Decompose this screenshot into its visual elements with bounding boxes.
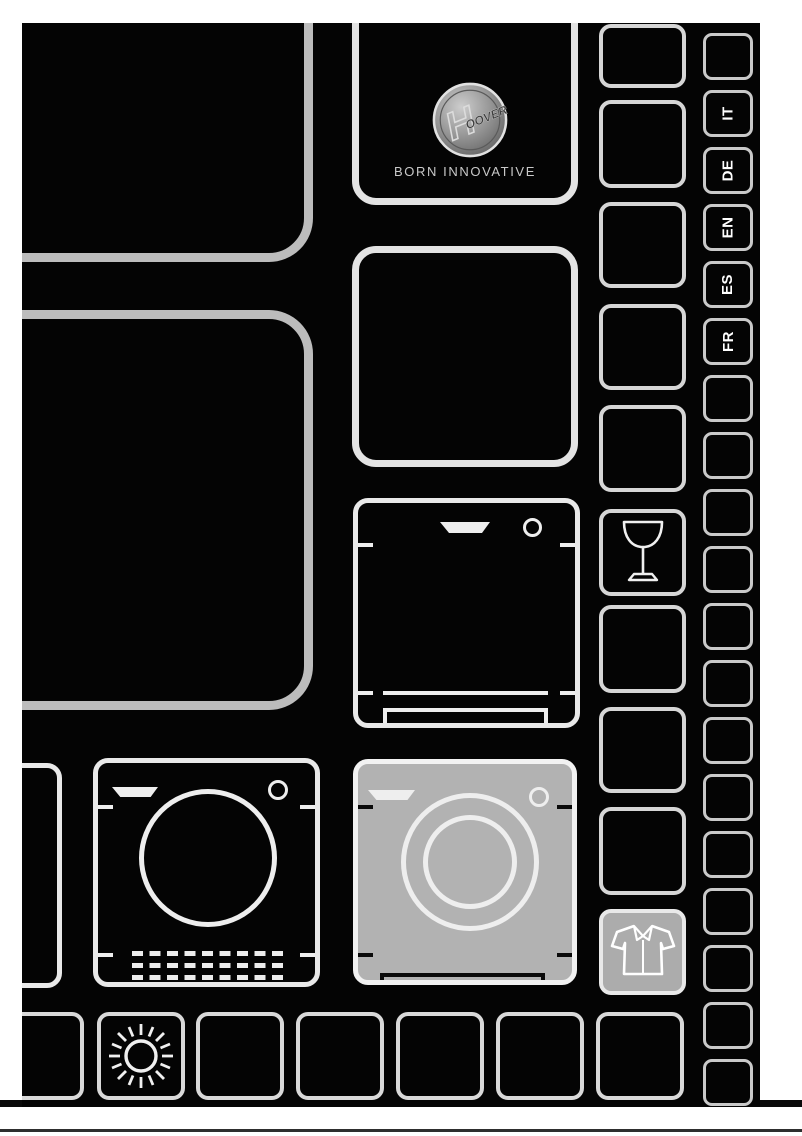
panel-top-left	[22, 23, 313, 262]
grid-cell	[599, 807, 686, 895]
grid-cell	[599, 24, 686, 88]
washer-handle	[368, 790, 415, 800]
tumble-dryer-icon	[93, 758, 320, 987]
grid-cell-small	[703, 33, 753, 80]
washer-panel-line-left	[358, 805, 373, 809]
grid-cell-small	[703, 888, 753, 935]
dishwasher-panel-line-left	[358, 543, 373, 547]
language-tab-it: IT	[703, 90, 753, 137]
dishwasher-icon	[353, 498, 580, 728]
wine-glass-cell	[599, 509, 686, 596]
grid-cell-cut-left	[22, 1012, 84, 1100]
grid-cell	[396, 1012, 484, 1100]
language-label: DE	[720, 160, 737, 182]
wine-glass-icon	[613, 518, 673, 588]
language-tab-en: EN	[703, 204, 753, 251]
grid-cell-small	[703, 489, 753, 536]
dishwasher-base-line	[383, 691, 548, 695]
panel-mid-left	[22, 310, 313, 710]
grid-cell-small	[703, 546, 753, 593]
dryer-vent-grille-row3	[132, 975, 283, 980]
shirt-cell	[599, 909, 686, 995]
grid-cell	[599, 202, 686, 288]
language-label: IT	[720, 106, 737, 120]
dryer-button	[268, 780, 288, 800]
washer-base-line-right	[557, 953, 572, 957]
washer-kickplate-left	[380, 973, 384, 980]
brand-tagline: BORN INNOVATIVE	[359, 164, 571, 179]
washer-base-line-left	[358, 953, 373, 957]
grid-cell-small	[703, 831, 753, 878]
grid-cell	[599, 605, 686, 693]
hoover-logo: H OOVER	[431, 81, 509, 159]
washer-porthole-inner	[423, 815, 517, 909]
grid-cell-small	[703, 660, 753, 707]
language-label: EN	[720, 217, 737, 239]
dishwasher-kickplate	[383, 708, 548, 712]
brand-panel: H OOVER BORN INNOVATIVE	[352, 23, 578, 205]
dryer-base-line-right	[300, 953, 315, 957]
manual-cover-page: H OOVER BORN INNOVATIVE	[0, 0, 802, 1136]
dryer-vent-grille	[132, 951, 283, 956]
grid-cell	[599, 100, 686, 188]
language-label: ES	[719, 274, 736, 295]
grid-cell-small	[703, 717, 753, 764]
panel-cut-left	[22, 763, 62, 988]
washer-kickplate-right	[541, 973, 545, 980]
panel-blank-middle	[352, 246, 578, 467]
washing-machine-icon	[353, 759, 577, 985]
grid-cell-small	[703, 1059, 753, 1106]
washer-kickplate	[380, 973, 545, 977]
grid-cell	[599, 405, 686, 492]
washer-button	[529, 787, 549, 807]
grid-cell	[196, 1012, 284, 1100]
language-tab-es: ES	[703, 261, 753, 308]
grid-cell	[296, 1012, 384, 1100]
grid-cell	[496, 1012, 584, 1100]
dishwasher-button	[523, 518, 542, 537]
dishwasher-handle	[440, 522, 490, 533]
language-tab-de: DE	[703, 147, 753, 194]
dishwasher-base-line-right	[560, 691, 575, 695]
grid-cell-small	[703, 432, 753, 479]
dryer-panel-line-right	[300, 805, 315, 809]
dryer-porthole	[139, 789, 277, 927]
grid-cell	[599, 304, 686, 390]
dryer-handle	[112, 787, 158, 797]
dryer-base-line-left	[98, 953, 113, 957]
grid-cell-small	[703, 1002, 753, 1049]
cover-art: H OOVER BORN INNOVATIVE	[22, 23, 760, 1107]
grid-cell-small	[703, 945, 753, 992]
dishwasher-panel-line-right	[560, 543, 575, 547]
grid-cell-small	[703, 375, 753, 422]
language-label: FR	[720, 331, 737, 352]
sun-cell	[97, 1012, 185, 1100]
sun-icon	[106, 1021, 176, 1091]
grid-cell-small	[703, 774, 753, 821]
dishwasher-base-line-left	[358, 691, 373, 695]
grid-cell-small	[703, 603, 753, 650]
washer-panel-line-right	[557, 805, 572, 809]
dishwasher-kickplate-left	[383, 708, 387, 723]
dryer-vent-grille-row2	[132, 963, 283, 968]
viewer-separator-line	[0, 1129, 802, 1132]
dryer-panel-line-left	[98, 805, 113, 809]
language-tab-fr: FR	[703, 318, 753, 365]
grid-cell	[596, 1012, 684, 1100]
dishwasher-kickplate-right	[544, 708, 548, 723]
grid-cell	[599, 707, 686, 793]
shirt-icon	[607, 918, 679, 986]
